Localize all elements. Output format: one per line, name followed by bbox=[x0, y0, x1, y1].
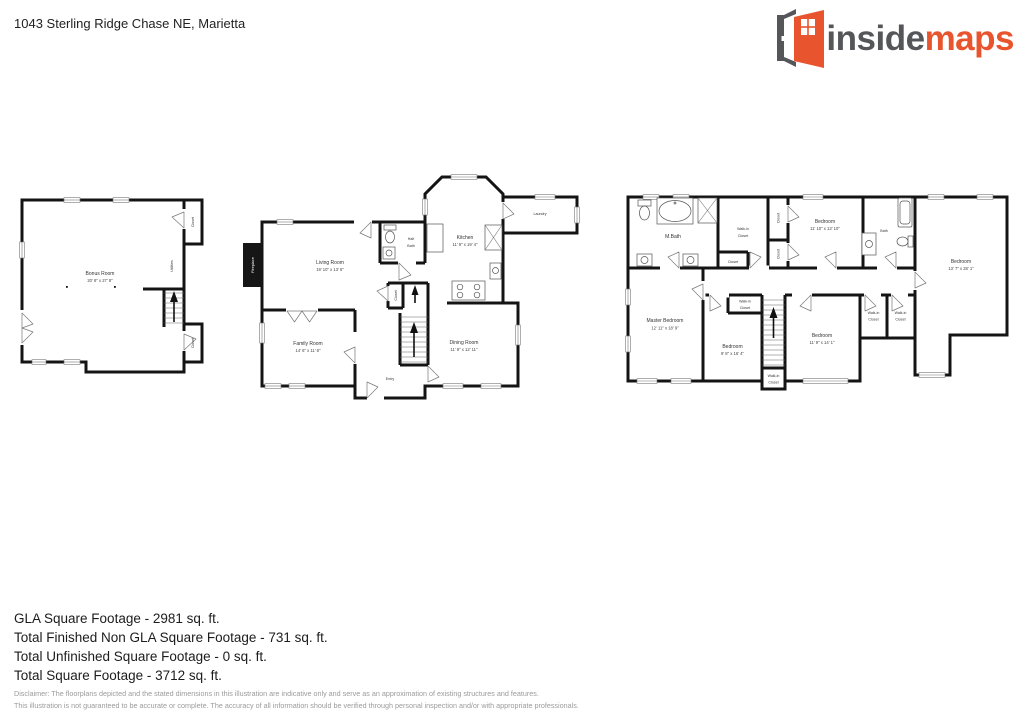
summary-line-total: Total Square Footage - 3712 sq. ft. bbox=[14, 666, 328, 685]
toilet-icon bbox=[897, 236, 913, 247]
walk-in-closet-label-1: Walk-in bbox=[768, 374, 780, 378]
refrigerator-icon bbox=[485, 225, 502, 250]
insidemaps-logo: insidemaps bbox=[774, 8, 1014, 70]
closet-label: Closet bbox=[191, 217, 195, 227]
bedroom-label: Bedroom bbox=[722, 344, 742, 350]
closet-label: Closet bbox=[777, 213, 781, 223]
sink-icon bbox=[637, 254, 652, 266]
floorplan-basement: Bonus Room 20' 8" x 27' 8" Utilities Clo… bbox=[18, 192, 208, 382]
family-room-dims: 14' 6" x 11' 8" bbox=[296, 348, 321, 353]
summary-line-non-gla: Total Finished Non GLA Square Footage - … bbox=[14, 628, 328, 647]
master-bedroom-label: Master Bedroom bbox=[647, 318, 684, 324]
logo-word-maps: maps bbox=[925, 19, 1014, 58]
summary-line-gla: GLA Square Footage - 2981 sq. ft. bbox=[14, 609, 328, 628]
walk-in-closet-label-2: Closet bbox=[868, 318, 878, 322]
dining-room-dims: 11' 9" x 12' 11" bbox=[451, 347, 479, 352]
living-room-label: Living Room bbox=[316, 260, 344, 266]
bedroom-dims: 9' 8" x 16' 4" bbox=[721, 351, 744, 356]
disclaimer: Disclaimer: The floorplans depicted and … bbox=[14, 688, 579, 711]
bonus-room-label: Bonus Room bbox=[86, 271, 115, 277]
bathtub-icon bbox=[898, 198, 912, 227]
bedroom-dims: 11' 10" x 13' 10" bbox=[810, 226, 840, 231]
closet-label: Closet bbox=[191, 338, 195, 348]
walk-in-closet-label-1: Walk-in bbox=[868, 311, 880, 315]
bath-label: Bath bbox=[880, 229, 887, 233]
door-icon bbox=[774, 5, 826, 73]
walls bbox=[262, 177, 577, 398]
kitchen-sink-icon bbox=[490, 263, 501, 279]
bedroom-label: Bedroom bbox=[815, 219, 835, 225]
entry-label: Entry bbox=[386, 377, 395, 381]
walk-in-closet-label-2: Closet bbox=[768, 381, 778, 385]
laundry-label: Laundry bbox=[534, 212, 547, 216]
stove-icon bbox=[452, 281, 485, 300]
logo-wordmark: insidemaps bbox=[826, 8, 1014, 70]
sink-icon bbox=[683, 254, 698, 266]
floorplan-page: 1043 Sterling Ridge Chase NE, Marietta i… bbox=[0, 0, 1024, 723]
walk-in-closet-label-2: Closet bbox=[895, 318, 905, 322]
family-room-label: Family Room bbox=[293, 341, 322, 347]
shower-icon bbox=[698, 198, 717, 223]
floorplan-main: Fireplace bbox=[237, 167, 592, 402]
walk-in-closet-label-2: Closet bbox=[740, 306, 750, 310]
summary-line-unfinished: Total Unfinished Square Footage - 0 sq. … bbox=[14, 647, 328, 666]
half-bath-label-2: Bath bbox=[407, 244, 414, 248]
walk-in-closet-label-1: Walk-in bbox=[895, 311, 907, 315]
disclaimer-line-2: This illustration is not guaranteed to b… bbox=[14, 700, 579, 712]
sink-icon bbox=[383, 247, 395, 259]
walk-in-closet-label-1: Walk-in bbox=[739, 300, 751, 304]
kitchen-label: Kitchen bbox=[457, 235, 474, 241]
bonus-room-dims: 20' 8" x 27' 8" bbox=[87, 278, 113, 283]
master-bath-label: M.Bath bbox=[665, 234, 681, 240]
sink-icon bbox=[862, 233, 876, 255]
plan-marker bbox=[114, 286, 116, 288]
bedroom-dims: 11' 9" x 14' 1" bbox=[810, 340, 835, 345]
counter bbox=[427, 224, 443, 252]
walls bbox=[22, 200, 202, 372]
walk-in-closet-label-1: Walk-in bbox=[737, 227, 749, 231]
half-bath-label-1: Half bbox=[408, 237, 414, 241]
square-footage-summary: GLA Square Footage - 2981 sq. ft. Total … bbox=[14, 609, 328, 685]
living-room-dims: 19' 10" x 13' 6" bbox=[316, 267, 344, 272]
walk-in-closet-label-2: Closet bbox=[738, 234, 748, 238]
bedroom-dims: 13' 7" x 28' 1" bbox=[948, 266, 974, 271]
disclaimer-line-1: Disclaimer: The floorplans depicted and … bbox=[14, 688, 579, 700]
fireplace-label: Fireplace bbox=[251, 257, 255, 273]
master-bedroom-dims: 12' 11" x 18' 9" bbox=[651, 326, 679, 331]
plan-marker bbox=[66, 286, 68, 288]
property-address: 1043 Sterling Ridge Chase NE, Marietta bbox=[14, 16, 245, 31]
utilities-label: Utilities bbox=[170, 260, 174, 272]
bedroom-label: Bedroom bbox=[812, 333, 832, 339]
fireplace: Fireplace bbox=[243, 243, 262, 287]
kitchen-dims: 11' 9" x 19' 4" bbox=[453, 242, 478, 247]
bathtub-icon bbox=[657, 198, 693, 224]
logo-word-inside: inside bbox=[826, 19, 924, 58]
closet-label: Closet bbox=[394, 290, 398, 300]
dining-room-label: Dining Room bbox=[450, 340, 479, 346]
floorplan-upper: M.Bath Walk-in Closet Closet Closet Clos… bbox=[613, 186, 1013, 401]
closet-label: Closet bbox=[777, 249, 781, 259]
closet-label: Closet bbox=[728, 260, 738, 264]
bedroom-label: Bedroom bbox=[951, 259, 971, 265]
